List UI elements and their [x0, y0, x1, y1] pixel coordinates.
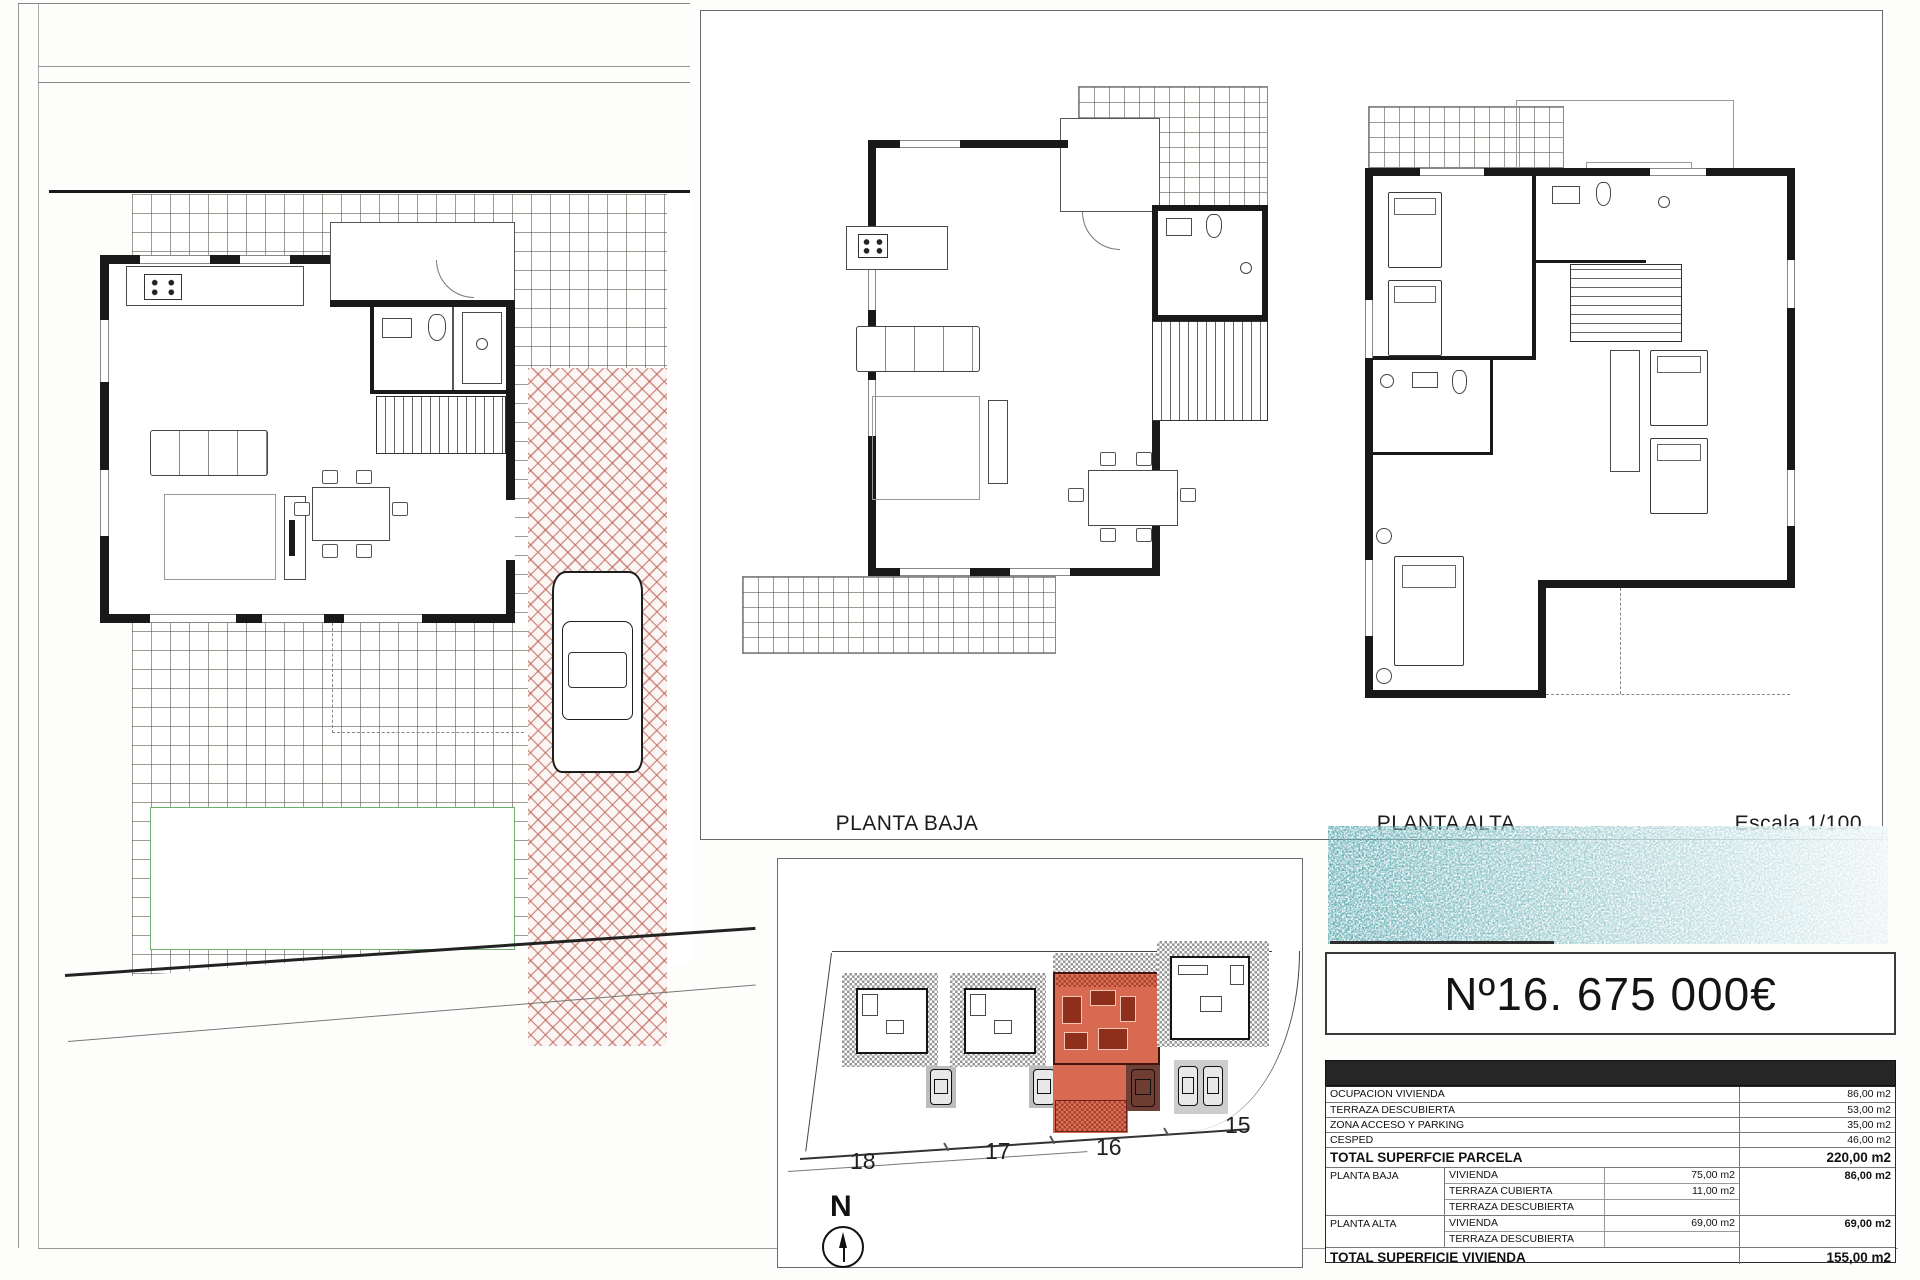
window	[262, 614, 324, 623]
mini-furniture	[1090, 990, 1116, 1006]
row-value: 11,00 m2	[1604, 1184, 1739, 1199]
planta-baja-label: PLANTA BAJA	[807, 813, 1007, 834]
table-group-planta-alta: PLANTA ALTA VIVIENDA 69,00 m2 TERRAZA DE…	[1326, 1215, 1895, 1247]
shower-drain	[1240, 262, 1252, 274]
table-total-parcel-row: TOTAL SUPERFCIE PARCELA 220,00 m2	[1326, 1147, 1895, 1167]
row-value: 35,00 m2	[1739, 1118, 1895, 1132]
plot-number-17: 17	[985, 1140, 1011, 1163]
sink	[1412, 372, 1438, 388]
partition-wall	[1373, 452, 1493, 455]
row-label: VIVIENDA	[1445, 1168, 1604, 1183]
car-icon	[930, 1069, 952, 1105]
window	[900, 568, 970, 576]
window	[100, 470, 109, 536]
stairs	[376, 396, 506, 454]
row-value: 53,00 m2	[1739, 1103, 1895, 1117]
row-label: TERRAZA CUBIERTA	[1445, 1184, 1604, 1199]
side-table	[1376, 668, 1392, 684]
mini-furniture	[970, 994, 986, 1016]
car-icon	[1203, 1066, 1223, 1106]
table-row: ZONA ACCESO Y PARKING 35,00 m2	[1326, 1117, 1895, 1132]
group-rows: VIVIENDA 75,00 m2 TERRAZA CUBIERTA 11,00…	[1444, 1168, 1739, 1215]
wall-segment	[1545, 580, 1795, 588]
row-label: CESPED	[1326, 1133, 1739, 1147]
terrace-grid	[742, 576, 1056, 654]
area-table: OCUPACION VIVIENDA 86,00 m2 TERRAZA DESC…	[1325, 1086, 1896, 1263]
stairs	[1570, 264, 1682, 342]
mini-furniture	[886, 1020, 904, 1034]
single-bed	[1388, 192, 1442, 268]
partition-wall	[1373, 356, 1533, 360]
drawing-sheet: PLANTA BAJA PLANTA ALTA Escala 1/100	[0, 0, 1920, 1280]
table-row: TERRAZA DESCUBIERTA 53,00 m2	[1326, 1102, 1895, 1117]
partition-wall	[452, 307, 454, 390]
dining-table	[312, 487, 390, 541]
wardrobe	[1610, 350, 1640, 472]
watermark-underline	[1330, 941, 1554, 944]
toilet	[1206, 214, 1222, 238]
north-arrow-icon	[822, 1226, 864, 1268]
window	[1365, 560, 1373, 636]
mini-furniture	[1120, 996, 1136, 1022]
row-value: 220,00 m2	[1739, 1148, 1895, 1167]
row-value: 69,00 m2	[1604, 1216, 1739, 1231]
window	[344, 614, 422, 623]
north-needle	[839, 1232, 847, 1248]
side-table	[1376, 528, 1392, 544]
lawn-area	[150, 807, 515, 950]
shower-drain	[1658, 196, 1670, 208]
wall-segment	[330, 300, 515, 307]
stove-icon	[858, 234, 888, 258]
chair	[322, 544, 338, 558]
plot-number-16: 16	[1096, 1136, 1122, 1159]
yard-margin	[667, 194, 692, 964]
group-rows: VIVIENDA 69,00 m2 TERRAZA DESCUBIERTA	[1444, 1216, 1739, 1247]
mini-furniture	[994, 1020, 1012, 1034]
north-needle-stem	[843, 1248, 845, 1262]
sofa	[856, 326, 980, 372]
entrance-porch	[330, 222, 515, 307]
row-value: 46,00 m2	[1739, 1133, 1895, 1147]
window	[240, 255, 290, 264]
sink	[1552, 186, 1580, 204]
table-group-planta-baja: PLANTA BAJA VIVIENDA 75,00 m2 TERRAZA CU…	[1326, 1167, 1895, 1215]
tv	[289, 520, 295, 556]
mini-furniture	[1062, 996, 1082, 1024]
double-bed	[1394, 556, 1464, 666]
highlight-plot-terrace	[1055, 1100, 1127, 1132]
plot-hatch	[1053, 953, 1160, 972]
table-header-bar	[1325, 1060, 1896, 1086]
chair	[356, 544, 372, 558]
single-bed	[1388, 280, 1442, 356]
row-label: TERRAZA DESCUBIERTA	[1445, 1232, 1604, 1247]
stove-icon	[144, 274, 182, 300]
car-icon	[1178, 1066, 1198, 1106]
plot-number-18: 18	[850, 1150, 876, 1173]
row-value: 86,00 m2	[1739, 1087, 1895, 1102]
toilet	[1596, 182, 1611, 206]
highlight-plot-hatch	[1056, 975, 1157, 987]
watermark-stamp	[1328, 826, 1888, 944]
entrance-porch	[1060, 118, 1160, 212]
group-row: TERRAZA DESCUBIERTA	[1445, 1231, 1739, 1247]
dining-table	[1088, 470, 1178, 526]
window	[1010, 568, 1070, 576]
chair	[294, 502, 310, 516]
window	[1420, 168, 1484, 176]
window	[1787, 260, 1795, 308]
row-value	[1604, 1232, 1739, 1247]
price-box: Nº16. 675 000€	[1325, 952, 1896, 1035]
row-label: TOTAL SUPERFICIE VIVIENDA	[1326, 1248, 1739, 1264]
wall-segment	[1538, 580, 1546, 698]
window	[140, 255, 210, 264]
partition-wall	[1532, 176, 1536, 360]
group-row: VIVIENDA 75,00 m2	[1445, 1168, 1739, 1183]
rug	[164, 494, 276, 580]
car-icon	[1033, 1069, 1055, 1105]
car-top-view	[552, 571, 643, 773]
group-row: TERRAZA CUBIERTA 11,00 m2	[1445, 1183, 1739, 1199]
window	[150, 614, 236, 623]
table-row: OCUPACION VIVIENDA 86,00 m2	[1326, 1087, 1895, 1102]
partition-wall	[370, 390, 510, 394]
chair	[1136, 452, 1152, 466]
row-label: VIVIENDA	[1445, 1216, 1604, 1231]
partition-wall	[370, 307, 374, 392]
row-label: TOTAL SUPERFCIE PARCELA	[1326, 1148, 1739, 1167]
wall-segment	[868, 140, 1068, 148]
terrace-dashed-line	[1546, 694, 1790, 695]
row-value: 155,00 m2	[1739, 1248, 1895, 1264]
wall-segment	[1365, 690, 1546, 698]
terrace-dashed-line	[1620, 588, 1621, 694]
car-icon	[1131, 1069, 1155, 1107]
wall-segment	[506, 300, 515, 623]
row-value: 75,00 m2	[1604, 1168, 1739, 1183]
chair	[322, 470, 338, 484]
row-label: TERRAZA DESCUBIERTA	[1326, 1103, 1739, 1117]
sink	[1166, 218, 1192, 236]
chair	[1068, 488, 1084, 502]
shower-drain	[1380, 374, 1394, 388]
window	[1650, 168, 1706, 176]
window	[1365, 300, 1373, 358]
group-label: PLANTA ALTA	[1326, 1216, 1444, 1247]
group-row: TERRAZA DESCUBIERTA	[1445, 1199, 1739, 1215]
group-total: 86,00 m2	[1739, 1168, 1895, 1215]
mini-furniture	[1064, 1032, 1088, 1050]
partition-wall	[1490, 360, 1493, 455]
chair	[1100, 528, 1116, 542]
chair	[1180, 488, 1196, 502]
tv-unit	[988, 400, 1008, 484]
stairs	[1152, 321, 1268, 421]
chair	[356, 470, 372, 484]
rug	[872, 396, 980, 500]
table-row: CESPED 46,00 m2	[1326, 1132, 1895, 1147]
row-label: OCUPACION VIVIENDA	[1326, 1087, 1739, 1102]
toilet	[1452, 370, 1467, 394]
window	[100, 320, 109, 382]
group-total: 69,00 m2	[1739, 1216, 1895, 1247]
sink	[382, 318, 412, 338]
door-opening	[506, 500, 515, 560]
mini-furniture	[862, 994, 878, 1016]
mini-furniture	[1178, 965, 1208, 975]
shower-drain	[476, 338, 488, 350]
toilet	[428, 314, 446, 341]
chair	[1136, 528, 1152, 542]
mini-furniture	[1200, 996, 1222, 1012]
mini-furniture	[1098, 1028, 1128, 1050]
plot-number-15: 15	[1225, 1114, 1251, 1137]
window	[900, 140, 960, 148]
chair	[1100, 452, 1116, 466]
single-bed	[1650, 438, 1708, 514]
setback-dashed-line	[332, 623, 524, 733]
main-site-plan	[0, 0, 700, 1280]
window	[1787, 470, 1795, 526]
partition-wall	[1536, 260, 1646, 263]
table-total-dwelling-row: TOTAL SUPERFICIE VIVIENDA 155,00 m2	[1326, 1247, 1895, 1264]
chair	[392, 502, 408, 516]
group-row: VIVIENDA 69,00 m2	[1445, 1216, 1739, 1231]
row-label: ZONA ACCESO Y PARKING	[1326, 1118, 1739, 1132]
wall-segment	[100, 255, 109, 623]
row-label: TERRAZA DESCUBIERTA	[1445, 1200, 1604, 1215]
mini-furniture	[1230, 965, 1244, 985]
row-value	[1604, 1200, 1739, 1215]
price-title: Nº16. 675 000€	[1444, 968, 1777, 1020]
wall-segment	[100, 255, 330, 264]
north-label: N	[830, 1192, 852, 1222]
single-bed	[1650, 350, 1708, 426]
group-label: PLANTA BAJA	[1326, 1168, 1444, 1215]
sofa	[150, 430, 268, 476]
